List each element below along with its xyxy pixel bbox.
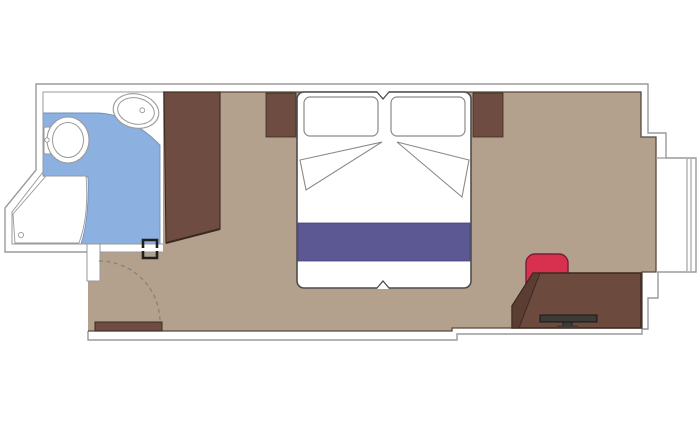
tv-stand bbox=[563, 322, 572, 326]
tv-base bbox=[557, 326, 578, 329]
nightstand-right bbox=[473, 93, 503, 137]
floor-plan bbox=[0, 0, 700, 433]
double-bed bbox=[297, 91, 471, 289]
sink-drain-icon bbox=[139, 107, 145, 113]
wardrobe bbox=[164, 92, 220, 243]
door-leaf bbox=[95, 322, 162, 331]
tv-screen bbox=[540, 315, 597, 322]
pillow-left bbox=[304, 97, 378, 136]
entry-wall-stub bbox=[87, 244, 100, 281]
nightstand-left bbox=[266, 93, 296, 137]
pillow-right bbox=[391, 97, 465, 136]
floor-plan-canvas bbox=[0, 0, 700, 433]
toilet-bowl-inner bbox=[53, 123, 84, 158]
toilet-flush-button bbox=[45, 138, 49, 142]
bed-runner bbox=[298, 223, 470, 261]
shower-drain-icon bbox=[18, 232, 23, 237]
